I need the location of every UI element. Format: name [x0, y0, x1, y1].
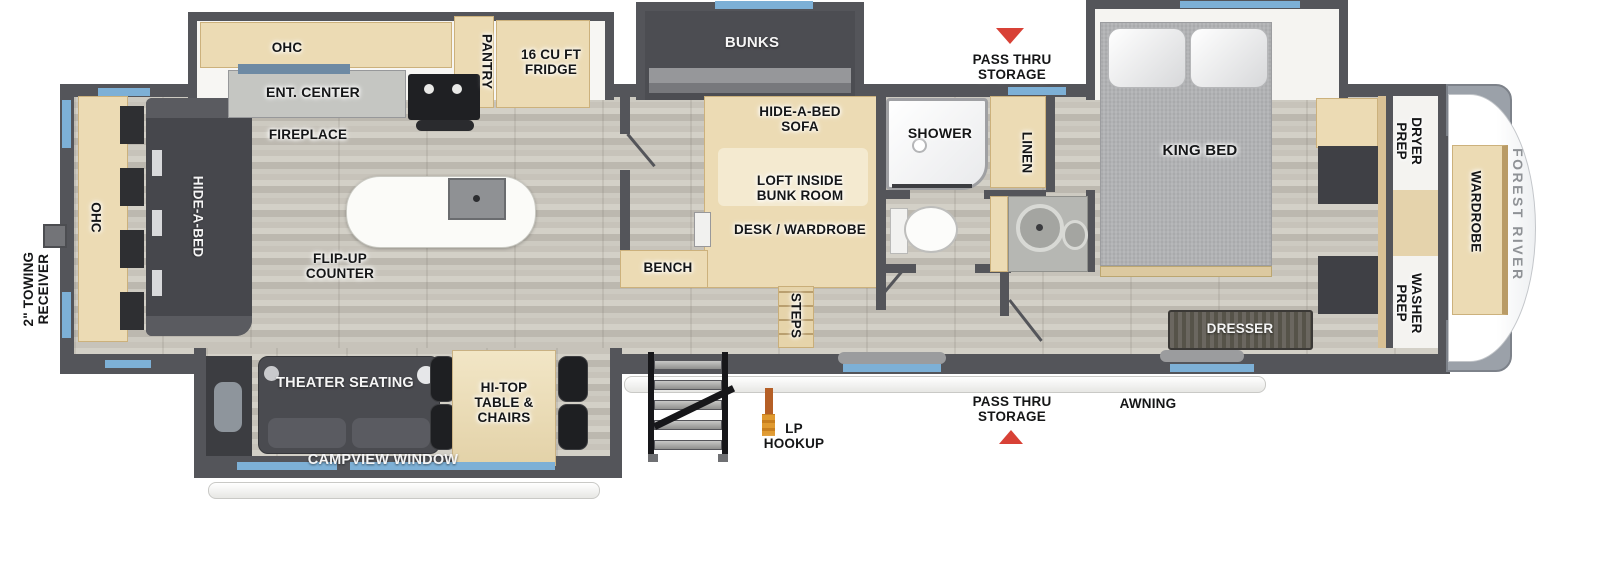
window-glass: [98, 88, 150, 96]
stove-knob: [452, 84, 462, 94]
door-window: [214, 382, 242, 432]
fridge-label: 16 CU FT FRIDGE: [501, 47, 601, 77]
vanity-fixture: [1062, 220, 1088, 250]
kitchen-ohc-label: OHC: [237, 40, 337, 55]
bedroom-cabinet-dark: [1318, 256, 1382, 314]
step-foot: [648, 454, 658, 462]
rear-cabinet-slot: [120, 292, 144, 330]
linen-label: LINEN: [1019, 123, 1034, 183]
rear-cabinet-slot: [120, 230, 144, 268]
vanity-cabinet: [990, 196, 1008, 272]
window-glass: [1008, 87, 1066, 95]
pillow: [1108, 28, 1186, 88]
theater-seating-label: THEATER SEATING: [275, 375, 415, 391]
window-glass: [1170, 364, 1254, 372]
wall-segment: [876, 190, 910, 199]
hide-a-bed-sofa-label: HIDE-A-BED SOFA: [730, 104, 870, 134]
window-glass: [62, 292, 71, 338]
rear-cabinet-slot: [120, 106, 144, 144]
toilet: [904, 206, 958, 253]
rear-hide-a-bed-label: HIDE-A-BED: [190, 157, 205, 277]
pantry-label: PANTRY: [479, 27, 494, 97]
tv: [238, 64, 350, 74]
brand-label: FOREST RIVER: [1509, 130, 1525, 300]
bed-footboard: [1100, 266, 1272, 277]
pass-thru-arrow-up-icon: [999, 430, 1023, 444]
bedroom-cabinet-dark: [1318, 146, 1382, 204]
bunk-edge-shadow: [649, 83, 851, 93]
stove-knob: [424, 84, 434, 94]
window-glass: [62, 100, 71, 148]
sofa-cushion-mark: [152, 210, 162, 236]
wall-segment: [620, 170, 630, 254]
vanity-sink-drain: [1036, 224, 1043, 231]
pillow: [1190, 28, 1268, 88]
vent-hood: [416, 120, 474, 131]
wall-segment: [876, 96, 886, 310]
window-frame: [1160, 350, 1244, 362]
wardrobe-passage: [1393, 190, 1438, 256]
ent-center-label: ENT. CENTER: [238, 85, 388, 101]
rv-floor-plan: 2" TOWING RECEIVER OHC HIDE-A-BED OHC EN…: [0, 0, 1600, 573]
theater-cushion: [268, 418, 346, 448]
wall-segment: [620, 96, 630, 134]
theater-cushion: [352, 418, 430, 448]
lp-hookup-label: LP HOOKUP: [744, 421, 844, 451]
chair: [558, 404, 588, 450]
bunk-edge: [649, 68, 851, 83]
shower: [886, 98, 988, 190]
pass-thru-top-label: PASS THRU STORAGE: [952, 52, 1072, 82]
window-glass: [843, 364, 941, 372]
bunks-label: BUNKS: [692, 35, 812, 52]
water-heater: [694, 212, 711, 247]
step-tread: [654, 360, 722, 370]
awning-bar-slide: [208, 482, 600, 499]
towing-receiver-label: 2" TOWING RECEIVER: [21, 229, 51, 349]
step-rail: [722, 352, 728, 454]
desk-wardrobe-label: DESK / WARDROBE: [710, 222, 890, 237]
pass-thru-arrow-down-icon: [996, 28, 1024, 44]
sink-drain: [473, 195, 480, 202]
window-glass: [105, 360, 151, 368]
stove: [408, 74, 480, 120]
wardrobe-label: WARDROBE: [1468, 162, 1483, 262]
campview-window-label: CAMPVIEW WINDOW: [293, 452, 473, 468]
rear-ohc-label: OHC: [88, 188, 103, 248]
kitchen-island: [346, 176, 536, 248]
awning-label: AWNING: [1098, 396, 1198, 411]
loft-label: LOFT INSIDE BUNK ROOM: [730, 173, 870, 203]
shower-door: [892, 184, 972, 188]
shower-label: SHOWER: [890, 126, 990, 142]
chair: [558, 356, 588, 402]
window-glass: [1180, 1, 1300, 8]
bench-label: BENCH: [618, 260, 718, 275]
rear-cabinet-slot: [120, 168, 144, 206]
lp-pipe: [765, 388, 773, 416]
sofa-armrest: [146, 316, 252, 336]
sofa-cushion-mark: [152, 150, 162, 176]
bedroom-cabinet: [1316, 98, 1378, 148]
step-tread: [654, 380, 722, 390]
washer-prep-label: WASHER PREP: [1394, 273, 1424, 333]
steps-label: STEPS: [788, 286, 803, 346]
step-foot: [718, 454, 728, 462]
flip-up-counter-label: FLIP-UP COUNTER: [270, 251, 410, 281]
window-frame: [838, 352, 946, 364]
hi-top-label: HI-TOP TABLE & CHAIRS: [454, 380, 554, 425]
wall-segment: [1046, 96, 1055, 192]
wall-segment: [1386, 96, 1393, 348]
step-tread: [654, 440, 722, 450]
dresser-label: DRESSER: [1180, 321, 1300, 336]
fireplace-label: FIREPLACE: [248, 127, 368, 142]
cabinet-strip: [1378, 96, 1386, 348]
window-glass: [715, 1, 813, 9]
sofa-cushion-mark: [152, 270, 162, 296]
pass-thru-bottom-label: PASS THRU STORAGE: [952, 394, 1072, 424]
king-bed-label: KING BED: [1140, 143, 1260, 160]
wall-segment: [876, 264, 916, 273]
dryer-prep-label: DRYER PREP: [1394, 111, 1424, 171]
linen-closet: [990, 96, 1046, 188]
